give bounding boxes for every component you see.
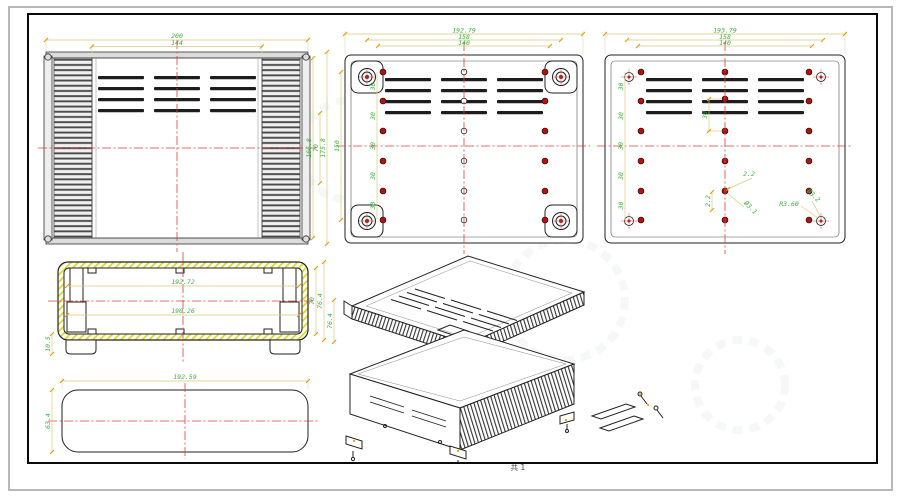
dim-label: 30 — [369, 83, 377, 92]
rear-view: 193.79 158 140 30 30 30 30 30 30 2.2 2.2… — [597, 27, 852, 255]
dim-label: 70 — [308, 297, 316, 305]
panel-view: 192.59 63.4 — [44, 373, 318, 459]
dim-label: 30 — [701, 111, 709, 120]
dim-label: 140 — [719, 39, 731, 47]
dim-label: 190.26 — [171, 307, 195, 315]
drawing-sheet: 200 144 166.8 70 175.8 — [0, 0, 900, 500]
dim-label: 30 — [369, 112, 377, 121]
dim-label: R3.60 — [779, 200, 799, 208]
dim-label: 10.5 — [44, 336, 52, 352]
cad-drawing: 200 144 166.8 70 175.8 — [0, 0, 900, 500]
sheet-count-label: 共 1 — [511, 463, 526, 472]
dim-label: 2.2 — [704, 195, 712, 207]
dim-label: 76.4 — [316, 293, 324, 309]
iso-chassis — [350, 330, 574, 450]
dim-label: 144 — [171, 39, 183, 47]
dim-label: 63.4 — [44, 413, 52, 429]
isometric-view: 76.4 — [326, 256, 663, 462]
dim-label: 30 — [369, 202, 377, 211]
dim-label: 76.4 — [326, 313, 334, 329]
dim-label: 30 — [617, 202, 625, 211]
bottom-view: 192.79 158 140 150 30 30 30 30 30 — [333, 27, 590, 255]
dim-label: 30 — [369, 172, 377, 181]
dim-label: 2.2 — [743, 170, 755, 178]
dim-label: 30 — [617, 112, 625, 121]
dim-label: 30 — [617, 172, 625, 181]
dim-label: 30 — [369, 142, 377, 151]
iso-brackets — [592, 392, 663, 431]
dim-label: 192.59 — [173, 373, 197, 381]
dim-label: 150 — [333, 140, 341, 152]
front-view: 200 144 166.8 70 175.8 — [38, 32, 327, 252]
dim-label: 30 — [617, 142, 625, 151]
dim-label: 140 — [458, 39, 470, 47]
iso-dimension: 76.4 — [326, 300, 334, 342]
section-view: 192.72 190.26 10.5 70 76.4 — [44, 252, 324, 362]
dim-label: 175.8 — [319, 138, 327, 158]
dim-label: 30 — [617, 83, 625, 92]
dim-label: 192.72 — [171, 278, 195, 286]
